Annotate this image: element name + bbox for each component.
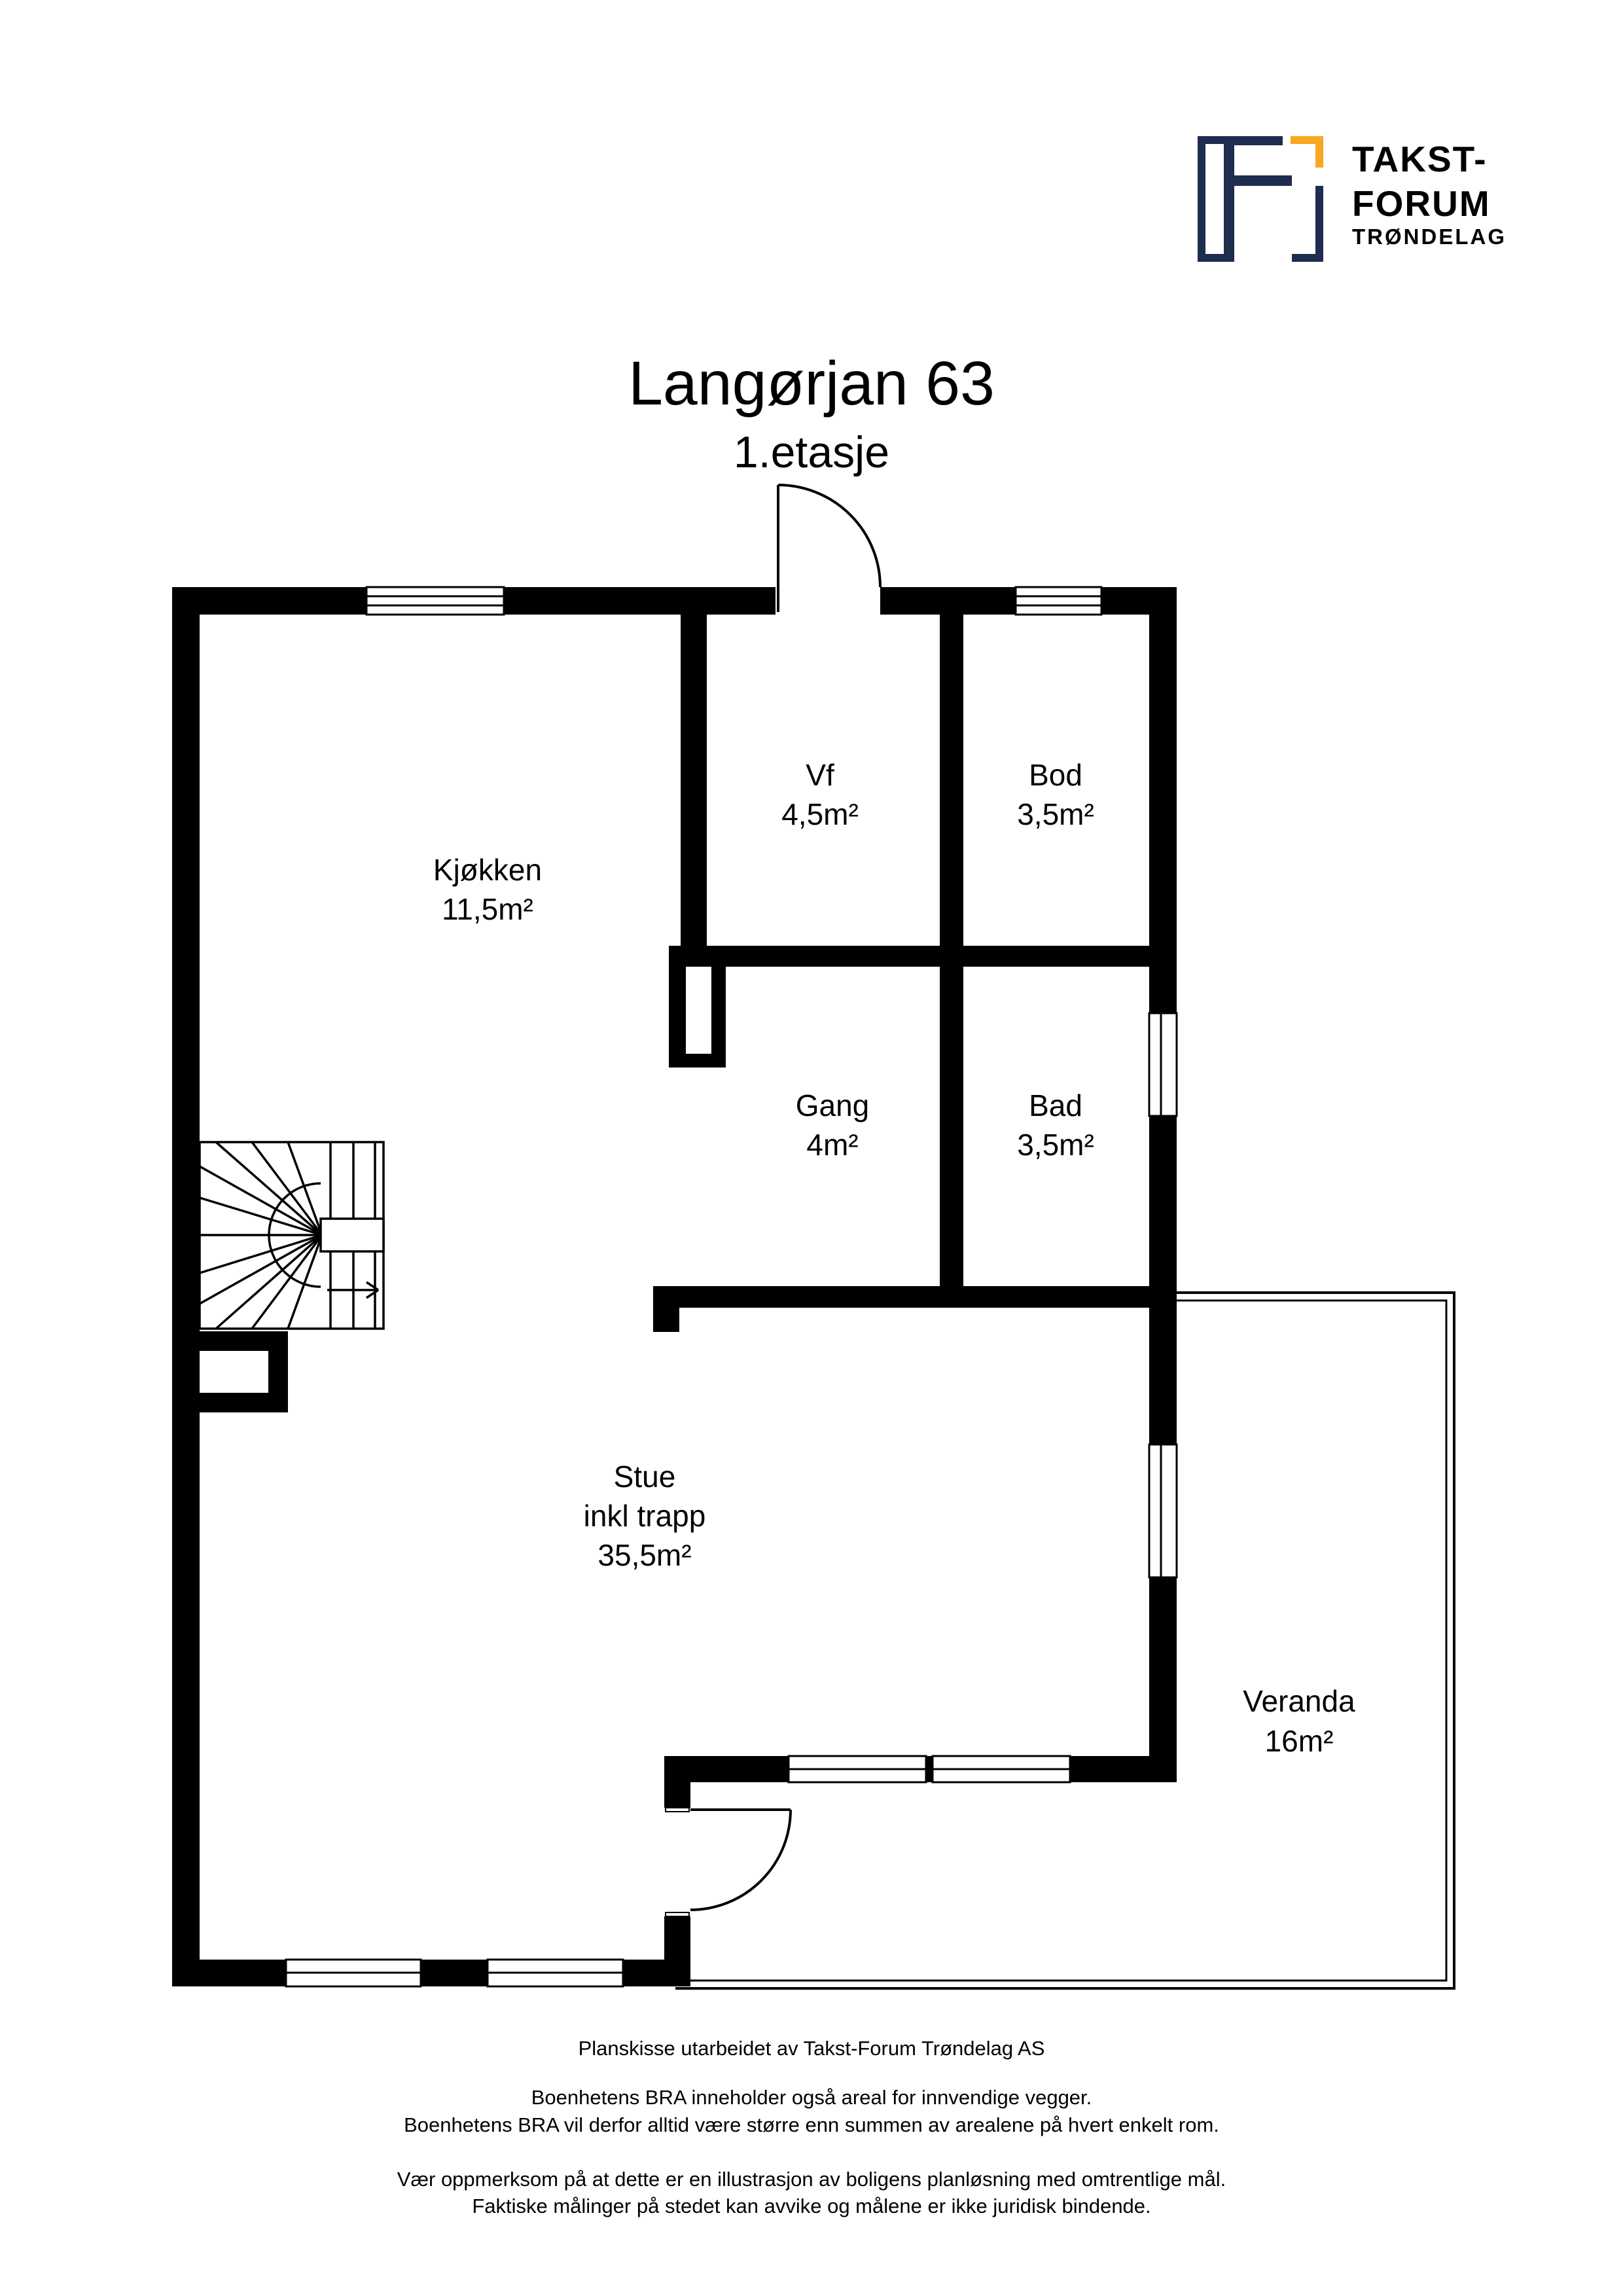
entrance-door-arc bbox=[778, 485, 880, 587]
room-area-bod: 3,5m² bbox=[1017, 797, 1094, 831]
room-label-gang: Gang bbox=[796, 1088, 870, 1122]
understairs-closet-interior bbox=[200, 1351, 268, 1393]
veranda-door bbox=[666, 1808, 791, 1916]
wall-left bbox=[172, 587, 200, 1986]
wall-shaft-right bbox=[711, 967, 726, 1067]
entrance-door bbox=[778, 485, 880, 612]
window-stue-bottom-2 bbox=[933, 1756, 1070, 1782]
window-stue-bottom-1 bbox=[789, 1756, 926, 1782]
wall-shaft-bottom bbox=[669, 1054, 726, 1067]
wall-veranda-door-bottom bbox=[664, 1916, 690, 1986]
room-area-gang: 4m² bbox=[806, 1128, 858, 1162]
room-area-kjokken: 11,5m² bbox=[442, 892, 533, 926]
room-label-bod: Bod bbox=[1029, 758, 1082, 792]
wall-kjokken-vf bbox=[681, 615, 707, 946]
wall-veranda-door-top bbox=[664, 1782, 690, 1808]
window-kjokken-top bbox=[366, 587, 504, 615]
room-area-vf: 4,5m² bbox=[781, 797, 859, 831]
floorplan-page: TAKST- FORUM TRØNDELAG Langørjan 63 1.et… bbox=[0, 0, 1623, 2296]
room-label-vf: Vf bbox=[806, 758, 834, 792]
footer-line-1: Planskisse utarbeidet av Takst-Forum Trø… bbox=[579, 2037, 1045, 2060]
footer-line-3: Boenhetens BRA vil derfor alltid være st… bbox=[404, 2113, 1219, 2136]
wall-gang-bad bbox=[940, 967, 963, 1308]
room-area-bad: 3,5m² bbox=[1017, 1128, 1094, 1162]
window-bottom-left-2 bbox=[488, 1960, 623, 1986]
wall-gang-bad-floor bbox=[653, 1286, 1149, 1308]
logo-text-line2: FORUM bbox=[1352, 183, 1491, 224]
wall-vf-bod bbox=[940, 615, 963, 946]
wall-vf-bod-floor bbox=[669, 946, 1149, 967]
veranda-outline bbox=[675, 1293, 1454, 1988]
page-subtitle: 1.etasje bbox=[734, 427, 889, 477]
staircase bbox=[200, 1142, 383, 1329]
staircase-landing-slot bbox=[321, 1219, 383, 1251]
room-label-veranda: Veranda bbox=[1243, 1684, 1355, 1718]
logo-text-line3: TRØNDELAG bbox=[1352, 224, 1507, 249]
floor-plan: Kjøkken 11,5m² Vf 4,5m² Bod 3,5m² Gang 4… bbox=[172, 485, 1454, 1988]
window-bad-right bbox=[1149, 1013, 1177, 1116]
wall-gang-floor-stub bbox=[653, 1308, 679, 1332]
room-label-stue: Stue bbox=[614, 1460, 676, 1494]
wall-right bbox=[1149, 587, 1177, 1782]
page-title: Langørjan 63 bbox=[628, 349, 995, 418]
room-label-kjokken: Kjøkken bbox=[433, 853, 542, 887]
footer-line-5: Faktiske målinger på stedet kan avvike o… bbox=[472, 2195, 1150, 2217]
floorplan-canvas: TAKST- FORUM TRØNDELAG Langørjan 63 1.et… bbox=[0, 0, 1623, 2296]
takst-forum-logo: TAKST- FORUM TRØNDELAG bbox=[1198, 136, 1507, 262]
room-labels: Kjøkken 11,5m² Vf 4,5m² Bod 3,5m² Gang 4… bbox=[433, 758, 1355, 1758]
footer-line-2: Boenhetens BRA inneholder også areal for… bbox=[531, 2086, 1092, 2109]
window-bottom-left-1 bbox=[286, 1960, 421, 1986]
footer-notes: Planskisse utarbeidet av Takst-Forum Trø… bbox=[397, 2037, 1226, 2217]
logo-bracket-f-icon bbox=[1198, 136, 1323, 262]
wall-shaft-left bbox=[669, 967, 686, 1067]
room-area-stue: 35,5m² bbox=[597, 1538, 691, 1572]
room-label-stue-sub: inkl trapp bbox=[584, 1499, 706, 1533]
room-label-bad: Bad bbox=[1029, 1088, 1082, 1122]
window-bod-top bbox=[1016, 587, 1101, 615]
footer-line-4: Vær oppmerksom på at dette er en illustr… bbox=[397, 2168, 1226, 2191]
room-area-veranda: 16m² bbox=[1265, 1724, 1334, 1758]
veranda-door-arc bbox=[690, 1810, 791, 1910]
logo-text-line1: TAKST- bbox=[1352, 139, 1488, 179]
window-stue-right bbox=[1149, 1444, 1177, 1577]
